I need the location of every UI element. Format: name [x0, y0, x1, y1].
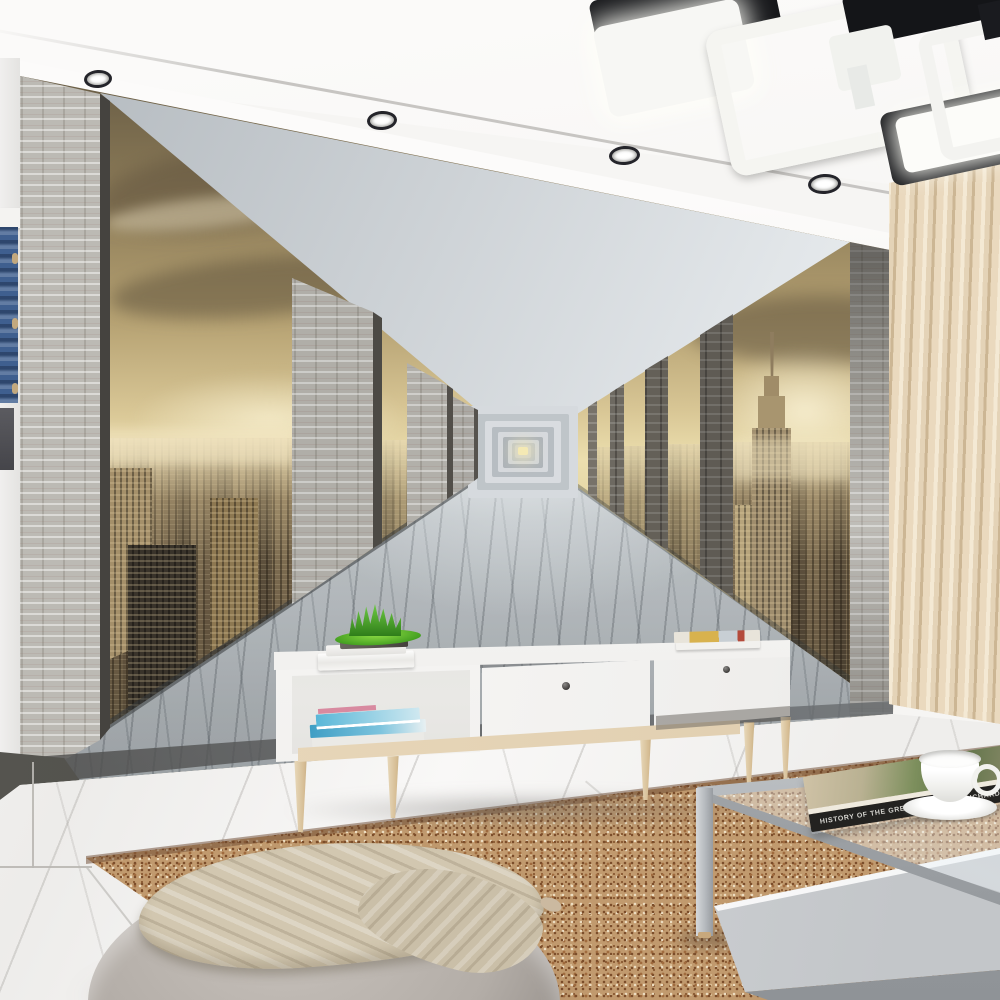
drawer-knob	[562, 682, 570, 690]
horizon-haze	[100, 428, 292, 464]
left-window-molding	[0, 208, 20, 228]
table-leg-foot	[698, 932, 711, 938]
marble-seam	[32, 762, 34, 868]
table-leg-post	[696, 788, 713, 936]
shade-tie	[12, 383, 18, 394]
dark-wall-panel	[0, 408, 14, 470]
spotlight-icon	[807, 173, 841, 195]
shade-tie	[12, 318, 18, 329]
marble-seam	[0, 866, 92, 868]
shade-tie	[12, 253, 18, 264]
teacup-handle	[972, 764, 1000, 796]
spotlight-icon	[366, 110, 397, 131]
horizon-haze	[733, 438, 850, 480]
teacup-rim	[919, 750, 981, 768]
magazines-on-top-cover	[674, 630, 760, 643]
living-room-photo: HISTORY OF THE GREATEST PLACES RICHARD H…	[0, 0, 1000, 1000]
vanishing-point-light	[518, 447, 528, 455]
drawer-knob	[723, 666, 730, 673]
spotlight-icon	[608, 145, 640, 166]
